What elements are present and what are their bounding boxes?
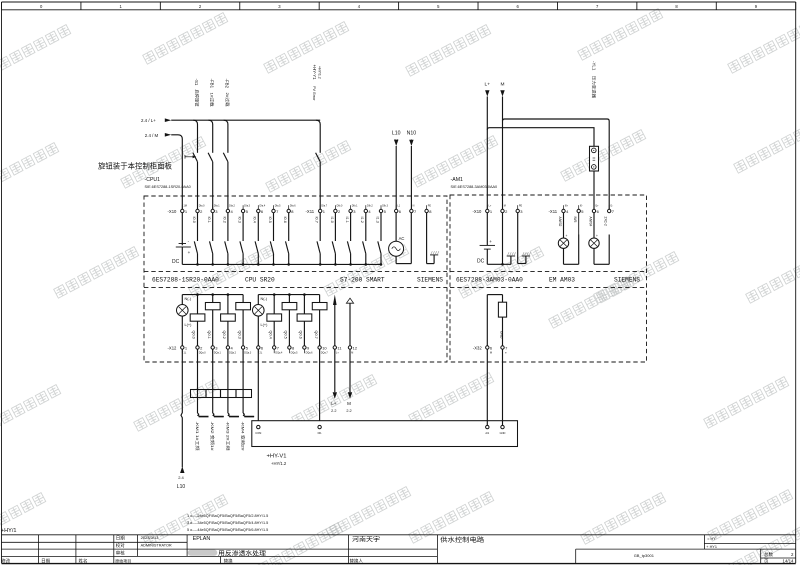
svg-text:Q0.6: Q0.6: [299, 331, 303, 339]
svg-text:Q0.7: Q0.7: [314, 331, 318, 339]
svg-text:L(+): L(+): [261, 323, 269, 327]
svg-text:M: M: [347, 401, 351, 406]
svg-text:L+: L+: [485, 82, 491, 88]
svg-text:DQa.3: DQa.3: [244, 352, 252, 355]
svg-text:GND: GND: [500, 431, 506, 435]
svg-text:-KM1 1#工频: -KM1 1#工频: [195, 422, 200, 451]
svg-text:DQa.2: DQa.2: [229, 352, 237, 355]
svg-text:-S1: -S1: [194, 79, 199, 86]
svg-text:DQa.4: DQa.4: [275, 352, 283, 355]
svg-text:EM AM03: EM AM03: [549, 277, 575, 284]
svg-text:I1.0: I1.0: [330, 217, 334, 223]
svg-text:DIb.3: DIb.3: [382, 205, 388, 208]
svg-text:N10: N10: [407, 131, 417, 137]
svg-text:Q0.5: Q0.5: [284, 331, 288, 339]
svg-text:2023/3/13: 2023/3/13: [141, 535, 160, 540]
svg-text:Q0.1: Q0.1: [207, 331, 211, 339]
svg-text:SIE.6ES7288-1SR20-0AA0: SIE.6ES7288-1SR20-0AA0: [145, 185, 191, 189]
svg-text:2.4: 2.4: [178, 475, 184, 480]
svg-text:N(-): N(-): [185, 297, 192, 301]
svg-text:+: +: [596, 234, 598, 238]
svg-text:= HY: = HY: [707, 537, 716, 541]
svg-text:-X10: -X10: [473, 209, 483, 214]
svg-text:DIb.2: DIb.2: [367, 205, 373, 208]
svg-text:+HY/1.2: +HY/1.2: [318, 66, 322, 79]
svg-text:DQa.7: DQa.7: [321, 352, 329, 355]
svg-text:PV Error: PV Error: [312, 86, 316, 101]
svg-text:-AM1: -AM1: [451, 177, 464, 183]
svg-text:M: M: [490, 351, 492, 355]
svg-text:1M: 1M: [184, 205, 187, 208]
svg-text:AC: AC: [399, 236, 405, 241]
svg-text:M: M: [501, 82, 505, 88]
svg-text:DIa.4: DIa.4: [260, 205, 266, 208]
svg-text:-X10: -X10: [168, 209, 178, 214]
svg-text:Q0.2: Q0.2: [222, 331, 226, 339]
svg-text:S7-200 SMART: S7-200 SMART: [340, 277, 385, 284]
svg-text:2.2: 2.2: [331, 409, 336, 413]
svg-text:EPLAN: EPLAN: [193, 536, 211, 542]
svg-text:L10: L10: [177, 484, 186, 490]
svg-text:2.4 / M: 2.4 / M: [145, 133, 159, 138]
svg-text:I0.6: I0.6: [283, 217, 287, 223]
svg-text:替换人: 替换人: [350, 557, 364, 564]
svg-text:DQa.5: DQa.5: [291, 352, 299, 355]
svg-text:+ HY1: + HY1: [706, 545, 717, 549]
svg-text:-CPU1: -CPU1: [145, 177, 161, 183]
svg-text:3 o----34e5QF/BaQF5/BaQF5/BaQF: 3 o----34e5QF/BaQF5/BaQF5/BaQF5/4.8HY/1.…: [187, 521, 268, 525]
svg-text:DIa.1: DIa.1: [214, 205, 220, 208]
svg-text:M: M: [351, 352, 353, 355]
svg-text:-X12: -X12: [168, 345, 178, 350]
svg-text:+HY/1: +HY/1: [1, 528, 17, 534]
svg-text:CPU SR20: CPU SR20: [245, 277, 275, 284]
svg-text:N: N: [413, 205, 415, 208]
svg-text:DQa.1: DQa.1: [214, 352, 222, 355]
svg-text:I0.4: I0.4: [253, 217, 257, 223]
svg-text:DIb.0: DIb.0: [337, 205, 343, 208]
svg-text:旋钮装于本控制柜面板: 旋钮装于本控制柜面板: [98, 161, 172, 171]
svg-text:DIa.0: DIa.0: [199, 205, 205, 208]
svg-text:PE: PE: [519, 205, 523, 208]
svg-text:2.4 / L+: 2.4 / L+: [141, 118, 156, 123]
svg-text:I1.2: I1.2: [360, 217, 364, 223]
svg-text:压力变送器: 压力变送器: [592, 76, 597, 98]
svg-text:6ES7288-1SR20-0AA0: 6ES7288-1SR20-0AA0: [152, 277, 219, 284]
svg-text:DC: DC: [477, 259, 485, 265]
svg-text:-KM4 变频2#: -KM4 变频2#: [241, 422, 246, 452]
svg-text:I1.1: I1.1: [345, 217, 349, 223]
svg-text:1#过载: 1#过载: [210, 93, 216, 107]
svg-text:PE: PE: [428, 205, 432, 208]
svg-text:DI1: DI1: [318, 431, 323, 435]
svg-text:I1-: I1-: [610, 205, 613, 208]
svg-text:I0.7: I0.7: [315, 217, 319, 223]
svg-text:DIa.5: DIa.5: [275, 205, 281, 208]
svg-text:-FB2: -FB2: [225, 79, 230, 89]
svg-text:Q0.4: Q0.4: [268, 331, 272, 339]
svg-text:2XC-2: 2XC-2: [604, 217, 608, 227]
svg-text:修改: 修改: [1, 557, 11, 564]
svg-text:1 o----24e5QF/BaQF5/BaQF5/BaQF: 1 o----24e5QF/BaQF5/BaQF5/BaQF5/2.8HY/1.…: [187, 514, 268, 518]
svg-text:校对: 校对: [116, 542, 126, 549]
svg-text:DIa.2: DIa.2: [229, 205, 235, 208]
svg-text:I0.3: I0.3: [238, 217, 242, 223]
svg-text:L(+): L(+): [185, 323, 193, 327]
svg-text:-KM3 2#工频: -KM3 2#工频: [225, 422, 230, 451]
svg-text:+: +: [566, 234, 568, 238]
svg-text:12: 12: [353, 345, 358, 350]
svg-text:14/14: 14/14: [783, 559, 795, 564]
svg-text:AI1: AI1: [485, 431, 489, 435]
svg-text:GND: GND: [500, 331, 504, 339]
svg-text:I1.3: I1.3: [375, 217, 379, 223]
svg-text:+: +: [489, 239, 492, 244]
svg-text:L10: L10: [392, 131, 401, 137]
svg-text:I0.2: I0.2: [222, 217, 226, 223]
svg-text:+HY-V1: +HY-V1: [267, 454, 287, 460]
svg-text:M: M: [504, 205, 506, 208]
svg-text:ADMINISTRATOR: ADMINISTRATOR: [141, 544, 172, 548]
svg-text:审核: 审核: [116, 549, 126, 556]
svg-text:6ES7288-3AM03-0AA0: 6ES7288-3AM03-0AA0: [456, 277, 523, 284]
svg-text:DQa.6: DQa.6: [306, 352, 314, 355]
svg-text:DIa.3: DIa.3: [244, 205, 250, 208]
svg-text:GB_tp3001: GB_tp3001: [634, 553, 655, 558]
svg-text:河南天宇: 河南天宇: [352, 536, 380, 544]
svg-text:5 o----44e5QF/BaQF5/BaQF5/BaQF: 5 o----44e5QF/BaQF5/BaQF5/BaQF5/6.8HY/1.…: [187, 528, 268, 532]
svg-text:总数: 总数: [764, 551, 774, 558]
svg-text:N(-): N(-): [261, 297, 268, 301]
svg-text:Q0.0: Q0.0: [192, 331, 196, 339]
svg-text:-X11: -X11: [306, 209, 315, 214]
svg-text:I0.5: I0.5: [268, 217, 272, 223]
svg-text:COM: COM: [255, 431, 261, 435]
svg-text:I0.0: I0.0: [192, 217, 196, 223]
svg-text:原始项目: 原始项目: [115, 557, 131, 563]
svg-text:DIa.6: DIa.6: [290, 205, 296, 208]
svg-text:-X11: -X11: [549, 209, 558, 214]
svg-text:供水控制电路: 供水控制电路: [440, 536, 485, 544]
svg-text:用反渗透水处理: 用反渗透水处理: [218, 550, 266, 558]
svg-text:启停旋钮: 启停旋钮: [194, 90, 200, 107]
svg-text:AIW34: AIW34: [588, 217, 592, 227]
svg-text:I0.1: I0.1: [207, 217, 211, 223]
svg-text:-X32: -X32: [473, 345, 483, 350]
svg-text:IW5: IW5: [573, 217, 577, 223]
svg-text:+HY/1.2: +HY/1.2: [271, 461, 287, 466]
svg-text:SIE.6ES7288-3AM03-0AA0: SIE.6ES7288-3AM03-0AA0: [451, 185, 498, 189]
svg-text:-YL1: -YL1: [592, 61, 597, 71]
svg-text:2#过载: 2#过载: [225, 93, 231, 107]
svg-text:DC: DC: [172, 259, 180, 265]
svg-text:姓名: 姓名: [79, 557, 88, 564]
svg-text:AIW32: AIW32: [558, 217, 562, 227]
svg-text:SIEMENS: SIEMENS: [417, 277, 443, 284]
svg-text:替换: 替换: [224, 557, 234, 564]
svg-text:-KM2 变频1#: -KM2 变频1#: [210, 422, 215, 452]
svg-text:DQa.0: DQa.0: [199, 352, 207, 355]
svg-text:DIa.7: DIa.7: [321, 205, 327, 208]
svg-text:I0-: I0-: [580, 205, 583, 208]
svg-text:2.2: 2.2: [346, 409, 351, 413]
svg-text:DIb.1: DIb.1: [352, 205, 358, 208]
svg-text:Q0.3: Q0.3: [237, 331, 241, 339]
svg-text:10: 10: [322, 345, 327, 350]
svg-text:+: +: [188, 250, 191, 255]
svg-text:-FB1: -FB1: [209, 79, 214, 89]
svg-text:L+: L+: [331, 401, 337, 406]
svg-text:+HY-Y1: +HY-Y1: [312, 65, 317, 81]
svg-text:SIEMENS: SIEMENS: [614, 277, 640, 284]
